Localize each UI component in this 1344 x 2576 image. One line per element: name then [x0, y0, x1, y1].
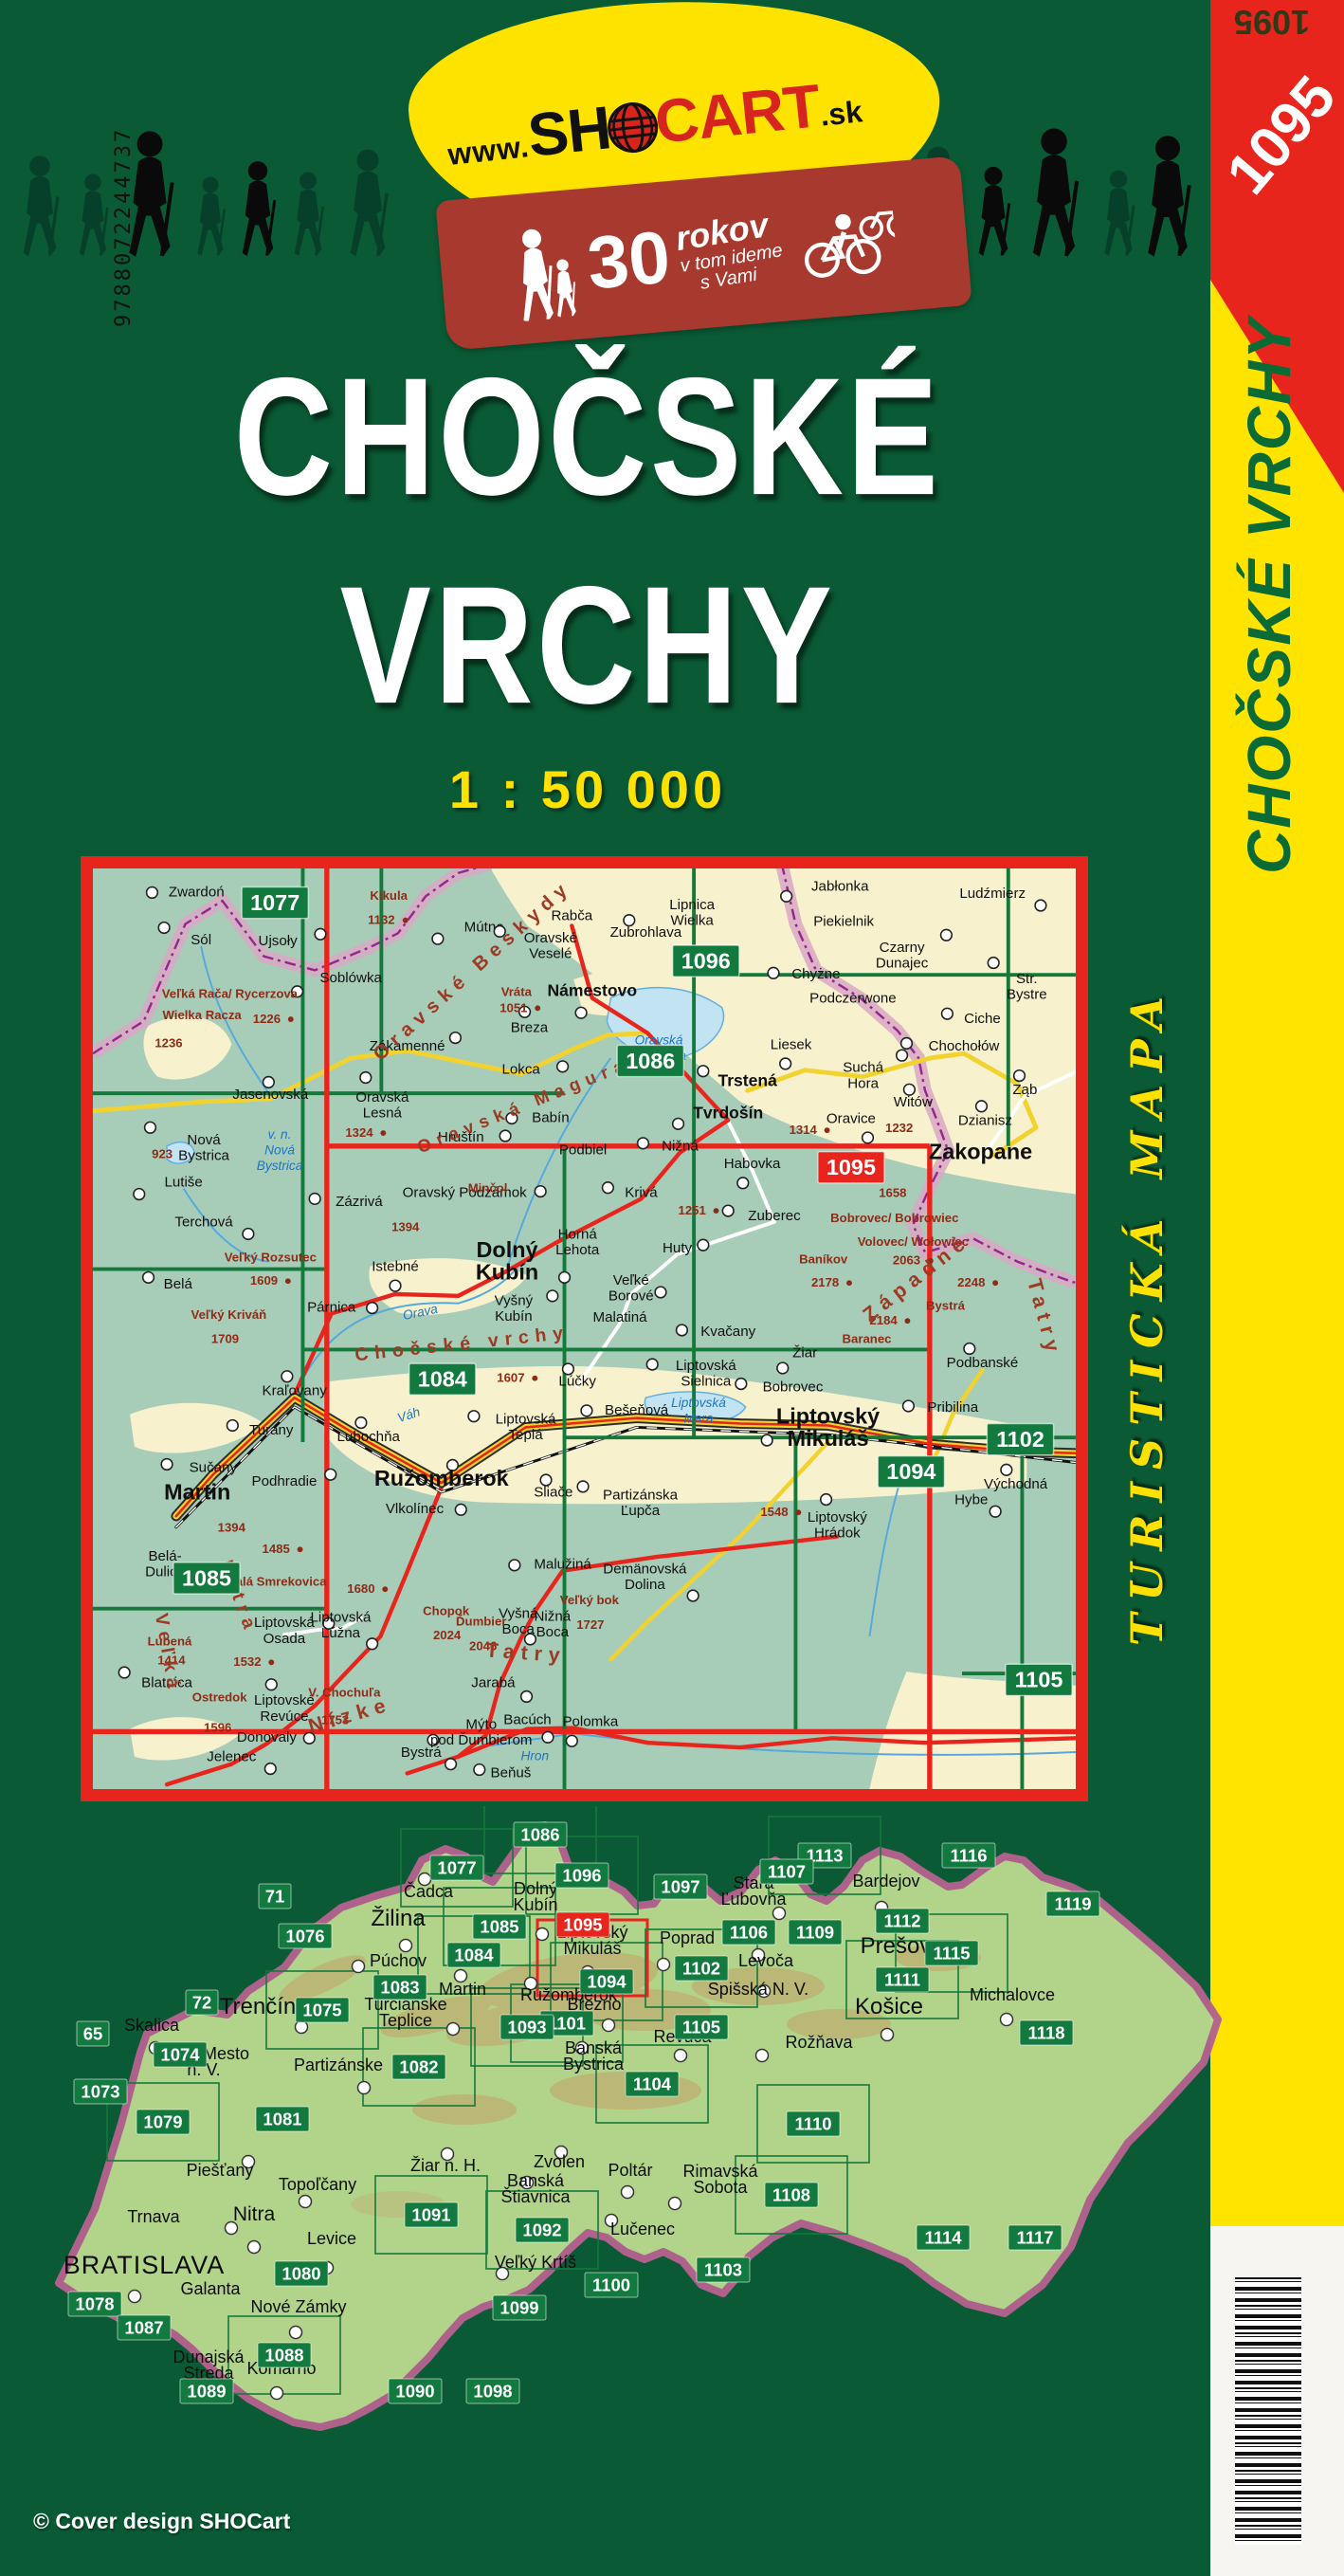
- town-dot: [897, 1050, 908, 1061]
- map-peak-label: 1607: [497, 1371, 524, 1385]
- peak-dot: [298, 1546, 303, 1552]
- town-dot: [325, 1469, 336, 1480]
- map-town-label: Žiar: [792, 1344, 817, 1361]
- map-peak-label: 1051: [499, 1000, 527, 1014]
- town-dot: [450, 1032, 462, 1044]
- map-peak-label: Baranec: [843, 1332, 892, 1346]
- town-dot: [646, 1359, 658, 1370]
- map-town-label: Oravice: [826, 1110, 876, 1126]
- map-town-label: Bešeňová: [605, 1402, 669, 1418]
- town-dot: [903, 1400, 915, 1412]
- overview-sheet-chip: 1115: [933, 1944, 970, 1964]
- town-dot: [722, 1205, 734, 1216]
- overview-sheet-chip: 1111: [884, 1970, 920, 1990]
- map-town-label: Podczerwone: [809, 991, 897, 1007]
- town-dot: [158, 923, 170, 934]
- overview-city-label: Levoča: [738, 1951, 794, 1970]
- map-town-label: Witów: [894, 1094, 933, 1110]
- barcode-number: 9788072244737: [112, 52, 136, 327]
- hiker-silhouette: [295, 173, 324, 256]
- town-dot: [821, 1494, 832, 1506]
- town-dot: [499, 1130, 511, 1142]
- town-dot: [315, 928, 326, 940]
- map-town-label: Zakopane: [929, 1139, 1032, 1163]
- overview-city-dot: [658, 1959, 670, 1971]
- overview-city-dot: [881, 2029, 894, 2041]
- map-town-label: Pribilina: [927, 1399, 978, 1416]
- map-town-label: Sliače: [534, 1485, 572, 1501]
- town-dot: [976, 1101, 988, 1112]
- hiker-silhouette: [129, 131, 173, 256]
- map-peak-label: 1394: [218, 1521, 246, 1535]
- overview-sheet-chip: 1100: [592, 2275, 630, 2295]
- town-dot: [355, 1417, 367, 1429]
- overview-city-label: Levice: [307, 2229, 356, 2248]
- overview-sheet-chip: 71: [265, 1887, 285, 1907]
- peak-dot: [268, 1659, 274, 1665]
- overview-sheet-chip: 1117: [1016, 2228, 1053, 2248]
- map-town-label: Krivá: [625, 1184, 658, 1200]
- overview-sheet-chip: 1091: [411, 2205, 450, 2225]
- hiker-silhouette: [351, 150, 389, 257]
- map-excerpt-panel: ZwardońSólUjsołySoblówkaMútneOravskéVese…: [81, 856, 1088, 1801]
- overview-sheet-chip: 1110: [794, 2114, 831, 2134]
- hiker-silhouette: [197, 176, 226, 255]
- overview-city-label: Nitra: [233, 2203, 276, 2225]
- map-town-label: Malužiná: [534, 1557, 591, 1573]
- map-town-label: Chyżne: [791, 966, 840, 982]
- town-dot: [1035, 900, 1046, 911]
- map-town-label: Podbanské: [947, 1355, 1019, 1371]
- map-town-label: Dzianisz: [958, 1112, 1012, 1128]
- town-dot: [638, 1138, 649, 1149]
- map-peak-label: Vráta: [501, 985, 533, 999]
- map-town-label: Jarabá: [471, 1675, 516, 1691]
- town-dot: [455, 1504, 466, 1515]
- town-dot: [445, 1759, 457, 1770]
- map-town-label: Terchová: [174, 1215, 233, 1231]
- map-peak-label: Wielka Racza: [162, 1008, 242, 1022]
- map-town-label: Kvačany: [700, 1324, 755, 1340]
- peak-dot: [992, 1280, 998, 1286]
- overview-sheet-chip: 1081: [263, 2110, 301, 2129]
- town-dot: [264, 1763, 276, 1775]
- overview-city-dot: [669, 2198, 681, 2210]
- map-town-label: Ujsoły: [259, 933, 299, 949]
- town-dot: [143, 1271, 154, 1283]
- map-town-label: Východná: [984, 1476, 1048, 1492]
- town-dot: [603, 1182, 614, 1194]
- town-dot: [990, 1506, 1001, 1517]
- map-peak-label: 1609: [250, 1273, 278, 1288]
- map-town-label: Jasenovská: [232, 1087, 308, 1103]
- overview-city-label: Lučenec: [610, 2220, 675, 2238]
- map-town-label: Lubochňa: [337, 1429, 401, 1445]
- cover-title-line1: CHOČSKÉ: [82, 353, 1093, 520]
- overview-sheet-chip: 1074: [160, 2045, 200, 2065]
- slovakia-overview-map: ČadcaŽilinaDolnýKubínStaráĽubovňaBardejo…: [38, 1806, 1223, 2432]
- town-dot: [988, 958, 999, 969]
- map-town-label: SucháHora: [843, 1060, 883, 1092]
- tourist-map-label: TURISTICKÁ MAPA: [1121, 824, 1169, 1806]
- map-town-label: DolnýKubín: [476, 1237, 538, 1284]
- overview-city-label: Žiar n. H.: [410, 2156, 481, 2175]
- town-dot: [147, 887, 158, 899]
- map-town-label: Lutiše: [164, 1175, 202, 1191]
- map-scale: 1 : 50 000: [0, 758, 1175, 820]
- overview-sheet-chip: 1087: [124, 2318, 163, 2338]
- overview-sheet-chip: 1075: [302, 2001, 341, 2020]
- map-town-label: Lokca: [502, 1062, 541, 1078]
- map-peak-label: 1596: [204, 1720, 231, 1734]
- overview-city-dot: [400, 1940, 412, 1952]
- overview-city-label: Zvolen: [534, 2152, 585, 2171]
- town-dot: [781, 890, 792, 902]
- sheet-chip: 1105: [1015, 1668, 1063, 1692]
- overview-sheet-chip: 1082: [399, 2057, 438, 2077]
- town-dot: [777, 1362, 789, 1374]
- overview-city-label: Partizánske: [294, 2055, 383, 2074]
- overview-sheet-chip: 1104: [633, 2074, 672, 2094]
- map-town-label: LiptovskýHrádok: [808, 1509, 867, 1542]
- map-peak-label: Veľký Rozsutec: [225, 1251, 317, 1265]
- overview-city-dot: [622, 2186, 634, 2199]
- logo-sh: SH: [525, 93, 614, 170]
- town-dot: [509, 1560, 520, 1571]
- town-dot: [118, 1667, 130, 1678]
- overview-sheet-chip: 1109: [796, 1923, 834, 1943]
- map-town-label: HornáLehota: [555, 1226, 600, 1258]
- map-town-label: Podhradie: [251, 1473, 317, 1489]
- map-peak-label: 1709: [211, 1332, 239, 1346]
- map-town-label: Lúčky: [558, 1374, 596, 1390]
- map-town-label: Zubrohlava: [610, 924, 682, 941]
- map-peak-label: 2024: [433, 1628, 462, 1642]
- hiker-silhouette: [80, 174, 109, 256]
- slovakia-shape: [59, 1825, 1218, 2427]
- town-dot: [673, 1118, 684, 1129]
- town-dot: [265, 1679, 277, 1690]
- overview-sheet-chip: 1102: [682, 1959, 720, 1979]
- town-dot: [535, 1186, 546, 1197]
- overview-sheet-chip: 1103: [704, 2260, 742, 2280]
- ribbon-cyclists-icon: [789, 198, 899, 283]
- overview-city-label: Rožňava: [785, 2033, 853, 2052]
- map-town-label: Zuberec: [748, 1208, 801, 1224]
- overview-city-dot: [271, 2387, 283, 2400]
- map-town-label: Ružomberok: [374, 1466, 510, 1490]
- overview-sheet-chip: 1099: [499, 2298, 538, 2318]
- map-town-label: Martin: [164, 1480, 230, 1505]
- map-town-label: Ciche: [964, 1011, 1001, 1027]
- map-peak-label: 923: [152, 1146, 173, 1160]
- map-peak-label: 1485: [263, 1542, 290, 1556]
- overview-sheet-chip: 1112: [883, 1911, 920, 1931]
- peak-dot: [905, 1318, 911, 1324]
- overview-sheet-chip: 1079: [143, 2112, 182, 2132]
- peak-dot: [532, 1376, 537, 1381]
- town-dot: [964, 1343, 975, 1355]
- map-town-label: Podbiel: [559, 1142, 607, 1159]
- map-town-label: Soblówka: [319, 970, 382, 986]
- town-dot: [1014, 1070, 1026, 1082]
- overview-city-label: Topoľčany: [279, 2175, 356, 2194]
- map-peak-label: 1314: [790, 1123, 818, 1137]
- map-peak-label: 1232: [885, 1121, 913, 1135]
- peak-dot: [795, 1509, 801, 1515]
- map-peak-label: Baníkov: [799, 1252, 848, 1267]
- map-town-label: Malatiná: [593, 1309, 648, 1325]
- town-dot: [145, 1122, 156, 1133]
- overview-sheet-chip-red: 1095: [563, 1915, 602, 1935]
- town-dot: [309, 1194, 320, 1205]
- overview-sheet-chip: 1084: [454, 1946, 494, 1965]
- town-dot: [282, 1371, 293, 1382]
- hiker-silhouette: [24, 155, 60, 256]
- map-peak-label: Bobrovec/ Bobrowiec: [830, 1211, 958, 1225]
- map-town-label: NižnáBoca: [535, 1608, 572, 1640]
- map-peak-label: Bystrá: [926, 1298, 966, 1312]
- sheet-chip: 1096: [681, 948, 731, 973]
- map-town-label: Oravský Podzámok: [403, 1184, 527, 1200]
- overview-sheet-chip: 1107: [768, 1862, 806, 1882]
- town-dot: [432, 933, 444, 944]
- map-peak-label: 1548: [760, 1505, 788, 1519]
- map-peak-label: Kikula: [370, 888, 408, 903]
- town-dot: [542, 1731, 554, 1743]
- map-town-label: Ząb: [1012, 1082, 1037, 1098]
- overview-city-dot: [129, 2291, 141, 2303]
- town-dot: [547, 1290, 558, 1302]
- map-town-label: Tvrdošín: [693, 1103, 763, 1122]
- map-town-label: Jelenec: [207, 1749, 257, 1765]
- cover-title-line2: VRCHY: [82, 561, 1093, 728]
- overview-sheet-chip: 1116: [950, 1846, 987, 1866]
- overview-city-label: RimavskáSobota: [682, 2162, 758, 2197]
- map-town-label: LiptovskýMikuláš: [776, 1404, 880, 1451]
- map-town-label: Kraľovany: [263, 1382, 328, 1398]
- map-town-label: Námestovo: [548, 981, 638, 1000]
- town-dot: [581, 1405, 592, 1416]
- overview-sheet-chip: 1105: [682, 2018, 720, 2037]
- town-dot: [863, 1132, 874, 1143]
- map-town-label: Piekielnik: [813, 914, 874, 930]
- overview-sheet-chip: 1088: [264, 2346, 303, 2366]
- peak-dot: [380, 1130, 386, 1136]
- overview-city-label: BanskáŠtiavnica: [500, 2171, 571, 2206]
- map-town-label: Jabłonka: [811, 878, 869, 894]
- overview-city-label: Veľký Krtíš: [495, 2253, 576, 2272]
- map-town-label: OravskáLesná: [355, 1089, 409, 1122]
- sheet-chip: 1102: [996, 1427, 1044, 1452]
- town-dot: [559, 1271, 571, 1283]
- town-dot: [227, 1420, 238, 1432]
- overview-city-label: Bardejov: [852, 1872, 919, 1891]
- town-dot: [941, 929, 953, 941]
- overview-city-dot: [773, 1908, 786, 1920]
- overview-city-dot: [300, 2196, 312, 2208]
- overview-city-dot: [353, 1961, 365, 1973]
- town-dot: [367, 1303, 378, 1314]
- map-town-label: Sučany: [190, 1459, 238, 1475]
- peak-dot: [825, 1127, 830, 1133]
- map-peak-label: Veľký bok: [560, 1593, 620, 1607]
- map-peak-label: 1727: [576, 1617, 604, 1632]
- overview-city-label: Galanta: [180, 2279, 241, 2298]
- map-town-label: Trstená: [717, 1070, 777, 1089]
- map-peak-label: 1324: [345, 1125, 373, 1140]
- hiker-silhouette: [243, 161, 277, 256]
- overview-sheet-chip: 1114: [924, 2228, 962, 2248]
- overview-sheet-chip: 1089: [187, 2382, 226, 2402]
- map-town-label: Ludźmierz: [959, 886, 1026, 902]
- map-town-label: CzarnyDunajec: [876, 940, 929, 972]
- map-peak-label: 1658: [879, 1185, 906, 1199]
- town-dot: [677, 1325, 688, 1336]
- town-dot: [736, 1379, 747, 1390]
- map-town-label: LiptovskéRevúce: [254, 1692, 315, 1725]
- overview-sheet-chip: 1096: [562, 1866, 601, 1886]
- overview-city-dot: [248, 2241, 261, 2254]
- map-peak-label: 1394: [391, 1220, 420, 1234]
- town-dot: [577, 1481, 589, 1492]
- peak-dot: [403, 918, 409, 923]
- overview-sheet-chip: 1097: [661, 1877, 699, 1897]
- town-dot: [737, 1178, 749, 1189]
- map-town-label: Breza: [511, 1020, 549, 1036]
- sheet-chip: 1095: [826, 1155, 876, 1179]
- overview-sheet-chip: 1119: [1054, 1894, 1091, 1914]
- map-town-label: VeľkéBorové: [608, 1272, 654, 1305]
- town-dot: [698, 1239, 709, 1251]
- spine-title: CHOČSKÉ VRCHY: [1234, 273, 1314, 918]
- overview-sheet-chip: 65: [83, 2024, 103, 2044]
- town-dot: [161, 1459, 173, 1471]
- sheet-chip: 1094: [886, 1459, 935, 1484]
- map-town-label: Istebné: [372, 1259, 419, 1275]
- map-town-label: Sól: [191, 932, 211, 948]
- peak-dot: [382, 1586, 388, 1592]
- overview-city-label: Spišská N. V.: [708, 1980, 808, 1999]
- overview-sheet-chip: 1085: [480, 1917, 518, 1937]
- overview-city-label: Poprad: [660, 1928, 715, 1947]
- overview-city-label: Trenčín: [220, 1994, 296, 2019]
- overview-city-label: Košice: [855, 1994, 923, 2019]
- town-dot: [474, 1764, 485, 1776]
- sheet-chip: 1077: [250, 890, 300, 915]
- overview-city-label: Púchov: [370, 1951, 427, 1970]
- overview-city-dot: [1001, 2014, 1013, 2026]
- overview-city-dot: [447, 2023, 460, 2036]
- overview-sheet-chip: 1078: [75, 2294, 114, 2314]
- overview-city-label: Žilina: [371, 1906, 426, 1931]
- map-town-label: Zwardoń: [169, 884, 225, 900]
- town-dot: [243, 1229, 254, 1240]
- overview-city-dot: [603, 2019, 615, 2032]
- logo-sk: .sk: [819, 94, 864, 132]
- overview-sheet-chip: 1092: [522, 2220, 561, 2240]
- overview-city-label: Skalica: [124, 2016, 180, 2035]
- map-town-label: Chochołów: [929, 1038, 1000, 1054]
- overview-city-label: Piešťany: [187, 2161, 254, 2180]
- town-dot: [557, 1061, 569, 1072]
- map-town-label: Nižná: [662, 1139, 699, 1155]
- peak-dot: [535, 1005, 540, 1011]
- map-town-label: Turany: [249, 1422, 294, 1438]
- overview-sheet-chip: 1076: [285, 1927, 324, 1946]
- overview-city-dot: [290, 2327, 302, 2339]
- barcode-panel: [1210, 2226, 1344, 2576]
- logo-www: www.: [446, 129, 532, 172]
- sheet-number-upside: 1095: [1244, 2, 1310, 42]
- map-town-label: Bacúch: [503, 1712, 551, 1728]
- town-dot: [134, 1189, 145, 1200]
- town-dot: [468, 1411, 480, 1422]
- map-town-label: Hybe: [954, 1491, 988, 1507]
- map-town-label: Zázrivá: [336, 1194, 383, 1210]
- map-town-label: LiptovskáSielnica: [676, 1358, 736, 1390]
- map-cover: www.SHCART.sk 30 rokov v tom ideme s Vam…: [0, 0, 1344, 2576]
- overview-city-dot: [756, 2050, 769, 2062]
- map-town-label: Bystrá: [401, 1745, 442, 1761]
- ribbon-30: 30: [585, 219, 673, 300]
- overview-sheet-chip: 1106: [730, 1923, 768, 1943]
- peak-dot: [285, 1278, 291, 1284]
- map-peak-label: 1680: [347, 1581, 374, 1596]
- barcode-bars: [1235, 2277, 1301, 2545]
- town-dot: [768, 967, 779, 978]
- map-town-label: Beňuš: [491, 1764, 532, 1781]
- sheet-chip: 1085: [182, 1565, 231, 1590]
- overview-sheet-chip: 1098: [473, 2382, 512, 2402]
- hiker-silhouette: [1104, 171, 1135, 256]
- overview-city-label: DolnýKubín: [513, 1879, 557, 1914]
- overview-city-label: Čadca: [404, 1881, 454, 1901]
- peak-dot: [714, 1208, 719, 1214]
- overview-city-label: Poltár: [608, 2161, 652, 2180]
- town-dot: [1001, 1464, 1012, 1475]
- town-dot: [687, 1590, 699, 1601]
- map-town-label: Polomka: [562, 1714, 618, 1730]
- town-dot: [698, 1066, 709, 1077]
- overview-city-dot: [358, 2082, 371, 2094]
- peak-dot: [846, 1280, 852, 1286]
- overview-sheet-chip: 1077: [437, 1858, 476, 1878]
- town-dot: [780, 1058, 791, 1069]
- map-peak-label: 2248: [957, 1275, 985, 1289]
- map-town-label: Huty: [663, 1240, 693, 1256]
- overview-city-dot: [536, 1928, 549, 1941]
- town-dot: [901, 1038, 913, 1050]
- town-dot: [566, 1735, 577, 1746]
- map-peak-label: 1236: [154, 1035, 182, 1050]
- town-dot: [390, 1280, 401, 1291]
- map-town-label: Belá: [164, 1276, 193, 1292]
- overview-city-dot: [675, 2050, 687, 2062]
- overview-city-label: Prešov: [861, 1933, 932, 1959]
- overview-sheet-chip: 1083: [380, 1978, 419, 1998]
- town-dot: [521, 1691, 533, 1703]
- sheet-chip: 1084: [418, 1366, 467, 1391]
- map-water-label: Hron: [521, 1749, 550, 1763]
- town-dot: [655, 1287, 666, 1298]
- map-town-label: Liesek: [771, 1036, 812, 1052]
- map-town-label: Vlkolínec: [386, 1501, 445, 1517]
- town-dot: [367, 1638, 378, 1650]
- map-peak-label: Ostredok: [192, 1690, 247, 1704]
- town-dot: [575, 1007, 587, 1018]
- overview-sheet-chip: 1093: [507, 2018, 546, 2037]
